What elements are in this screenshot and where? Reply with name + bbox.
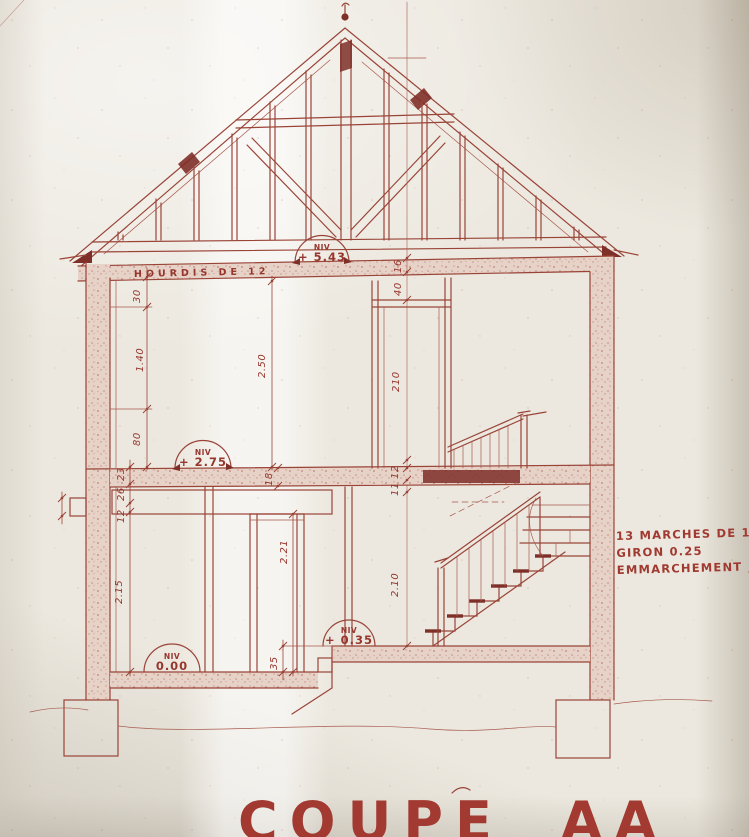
drawing-title: COUPE AA	[238, 790, 668, 837]
dim-16: 16	[393, 259, 404, 273]
dim-2-21: 2.21	[279, 540, 290, 564]
scanned-drawing-sheet: HOURDIS DE 12	[0, 0, 749, 837]
dim-12: 12	[116, 509, 127, 523]
dim-30: 30	[132, 289, 143, 303]
dim-18: 18	[264, 472, 275, 486]
king-post-block	[340, 40, 352, 72]
level-half-value: + 0.35	[325, 633, 373, 647]
stair-note-line2: GIRON 0.25	[616, 544, 703, 560]
dim-11-slab: 11	[390, 482, 401, 496]
level-first-value: + 2.75	[179, 455, 227, 469]
dim-80: 80	[132, 432, 143, 446]
dim-35: 35	[269, 656, 280, 670]
level-ridge-value: + 5.43	[298, 250, 346, 264]
right-wall	[590, 256, 614, 700]
section-drawing: HOURDIS DE 12	[0, 0, 749, 837]
stair-trimmer-beam	[423, 470, 520, 483]
dim-12-slab: 12	[390, 465, 401, 479]
dim-2-50: 2.50	[257, 354, 268, 378]
dim-23: 23	[116, 467, 127, 481]
paper-texture	[0, 0, 749, 837]
dim-40: 40	[393, 282, 404, 296]
dim-1-40: 1.40	[135, 348, 146, 372]
ridge-ornament	[341, 13, 348, 20]
level-ground-value: 0.00	[156, 659, 188, 673]
dim-2-10-ground: 2.10	[390, 573, 401, 597]
dim-2-15: 2.15	[114, 580, 125, 604]
dim-26: 26	[116, 487, 127, 501]
dim-210-door: 210	[391, 371, 402, 392]
